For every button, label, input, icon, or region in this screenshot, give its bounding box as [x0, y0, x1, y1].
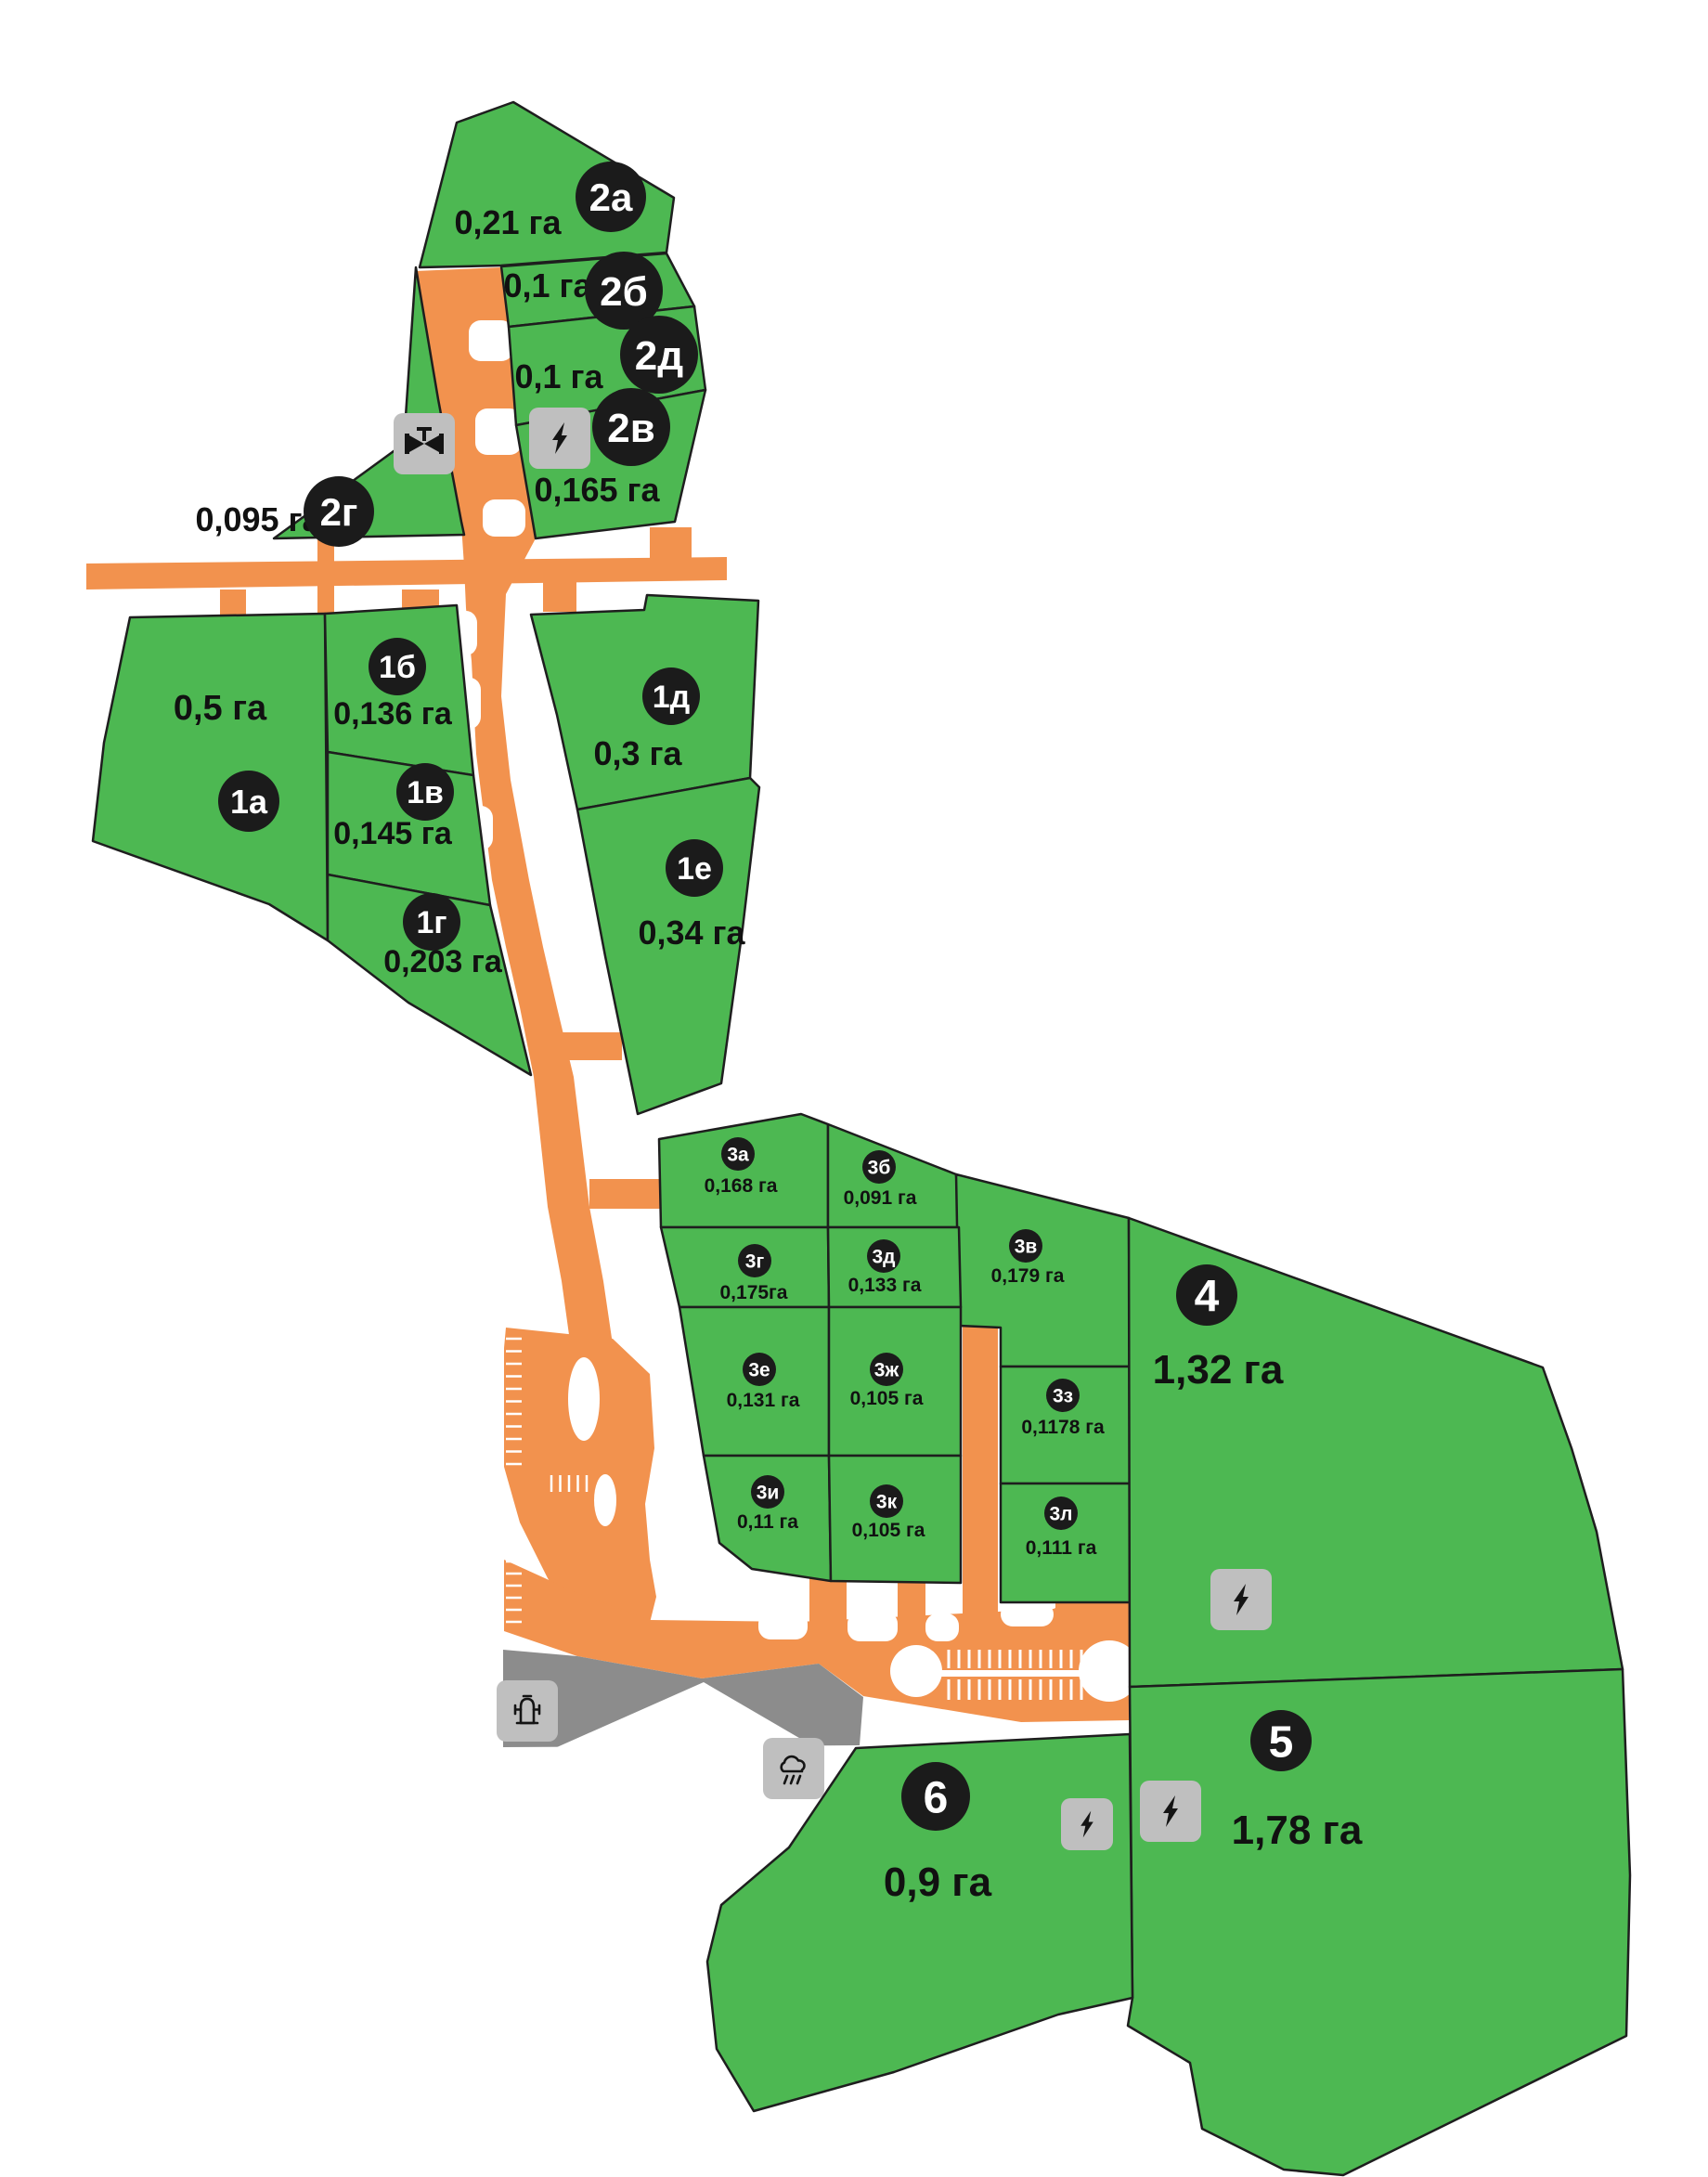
plot-4-number: 4: [1195, 1272, 1220, 1321]
road-gap-notch: [483, 499, 525, 537]
parking-center-line: [918, 1670, 1109, 1677]
plot-3v-area: 0,179 га: [991, 1265, 1065, 1287]
road-stub-plot3k: [898, 1580, 925, 1625]
plot-1e-area: 0,34 га: [638, 914, 745, 952]
plot-1e-number: 1е: [677, 851, 712, 887]
plot-3k-number: 3к: [876, 1492, 898, 1513]
plot-3l-area: 0,111 га: [1026, 1537, 1097, 1559]
plot-2b-area: 0,1 га: [503, 266, 592, 305]
plot-3b-number: 3б: [868, 1158, 891, 1179]
valve-icon: [394, 413, 455, 474]
plot-3zh-number: 3ж: [874, 1360, 900, 1381]
plot-2v-area: 0,165 га: [534, 471, 660, 509]
plot-3zh-area: 0,105 га: [850, 1388, 924, 1409]
power-icon-5: [1140, 1781, 1201, 1842]
plot-3e-number: 3е: [748, 1360, 770, 1381]
power-icon-4: [1210, 1569, 1272, 1630]
plot-3a[interactable]: [659, 1114, 828, 1227]
map-canvas: 0,21 га0,1 га0,1 га0,165 га0,095 га0,5 г…: [0, 0, 1708, 2177]
plot-3i-number: 3и: [757, 1483, 780, 1504]
road-vertical-3grid: [963, 1326, 998, 1625]
plot-2d-area: 0,1 га: [514, 357, 603, 395]
plot-2g-number: 2г: [320, 490, 358, 534]
plot-2g-area: 0,095 га: [195, 500, 321, 538]
traffic-island: [594, 1474, 616, 1526]
plot-6-area: 0,9 га: [884, 1860, 992, 1905]
plot-1a-area: 0,5 га: [174, 689, 267, 728]
plot-3e-area: 0,131 га: [727, 1390, 800, 1411]
plot-2a-number: 2а: [589, 175, 633, 219]
plot-5-number: 5: [1269, 1717, 1294, 1767]
hydrant-icon: [497, 1680, 558, 1742]
plot-3g-area: 0,175га: [720, 1282, 788, 1303]
road-gap-notch: [469, 320, 513, 361]
plot-3i-area: 0,11 га: [737, 1511, 798, 1533]
plot-3a-number: 3а: [727, 1145, 749, 1166]
power-icon-6: [1061, 1798, 1113, 1850]
plot-5-area: 1,78 га: [1232, 1808, 1363, 1853]
plot-3k-area: 0,105 га: [852, 1520, 925, 1541]
plot-4-area: 1,32 га: [1153, 1347, 1284, 1393]
plot-1g-number: 1г: [416, 905, 446, 940]
plot-1a[interactable]: [93, 614, 328, 940]
road-stub-plot3a: [589, 1179, 664, 1209]
road-gap-notch: [1001, 1602, 1054, 1626]
plot-1b-number: 1б: [379, 650, 416, 685]
plot-3v-number: 3в: [1015, 1237, 1038, 1258]
road-gap-notch: [848, 1612, 898, 1641]
plots-layer: [93, 102, 1630, 2175]
plot-3d_-number: 3д: [872, 1247, 895, 1268]
plot-3b[interactable]: [828, 1124, 959, 1227]
plot-1d-area: 0,3 га: [593, 734, 682, 772]
plot-1a-number: 1а: [230, 783, 268, 821]
rain-drainage-icon: [763, 1738, 824, 1799]
plot-3z-area: 0,1178 га: [1021, 1417, 1105, 1438]
road-stub-plot3ik: [809, 1578, 847, 1625]
road-stub-plot2v: [650, 527, 692, 564]
plot-1v-area: 0,145 га: [333, 816, 453, 851]
road-stub-plot1d: [543, 578, 576, 612]
plot-3d_-area: 0,133 га: [848, 1275, 922, 1296]
plot-3l-number: 3л: [1049, 1504, 1072, 1525]
road-gap-notch: [925, 1613, 959, 1641]
plot-2v-number: 2в: [607, 406, 655, 451]
plot-3g-number: 3г: [745, 1251, 765, 1273]
road-stub-gap-1e: [557, 1032, 622, 1060]
plot-1g-area: 0,203 га: [383, 944, 503, 979]
plot-6-number: 6: [924, 1773, 949, 1822]
plot-3z-number: 3з: [1053, 1386, 1073, 1407]
plot-1d-number: 1д: [653, 680, 691, 715]
plot-3b-area: 0,091 га: [844, 1187, 917, 1209]
plot-1v-number: 1в: [407, 775, 444, 810]
plot-5[interactable]: [1128, 1669, 1630, 2175]
road-stub-cross-2g: [317, 538, 334, 620]
plot-2d-number: 2д: [635, 333, 683, 379]
traffic-island: [568, 1357, 600, 1441]
land-plot-map: 0,21 га0,1 га0,1 га0,165 га0,095 га0,5 г…: [0, 0, 1708, 2177]
plot-2b-number: 2б: [600, 269, 648, 315]
plot-3a-area: 0,168 га: [705, 1175, 778, 1197]
power-icon-2v: [529, 408, 590, 469]
plot-2a-area: 0,21 га: [454, 203, 562, 241]
road-horizontal-west: [86, 557, 727, 590]
road-gap-notch: [758, 1612, 808, 1639]
plot-1b-area: 0,136 га: [333, 696, 453, 732]
